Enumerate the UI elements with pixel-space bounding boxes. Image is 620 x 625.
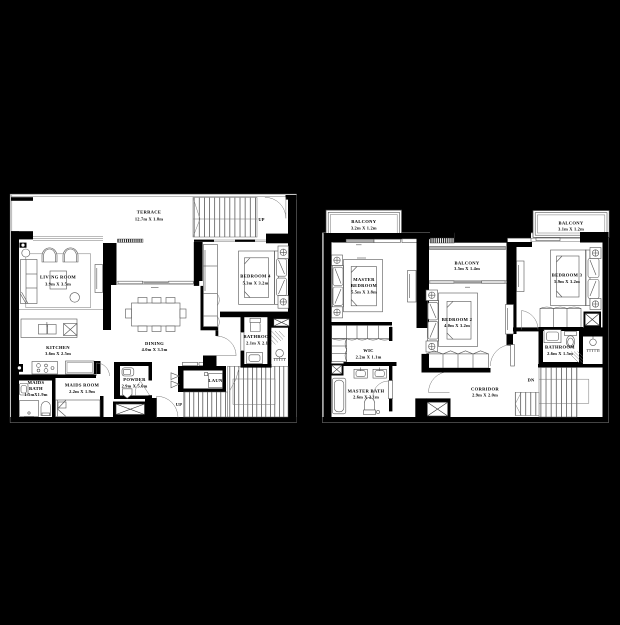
svg-text:2.6m X 1.5m: 2.6m X 1.5m: [547, 351, 573, 356]
svg-text:2.9m X 2.0m: 2.9m X 2.0m: [472, 392, 498, 397]
svg-text:BEDROOM: BEDROOM: [351, 283, 378, 288]
svg-text:3.1m X 1.2m: 3.1m X 1.2m: [558, 227, 584, 232]
svg-text:KITCHEN: KITCHEN: [46, 345, 70, 350]
svg-text:4.0m X 3.2m: 4.0m X 3.2m: [444, 323, 470, 328]
svg-text:BATHROOM: BATHROOM: [244, 334, 274, 339]
svg-text:MASTER BATH: MASTER BATH: [348, 388, 385, 393]
svg-text:BEDROOM 3: BEDROOM 3: [552, 273, 583, 278]
svg-text:WIC: WIC: [363, 348, 374, 353]
svg-text:LAUN: LAUN: [208, 378, 223, 383]
svg-text:BALCONY: BALCONY: [351, 219, 376, 224]
svg-text:5.5m X 3.8m: 5.5m X 3.8m: [351, 289, 377, 294]
svg-text:BATH: BATH: [29, 386, 43, 391]
svg-text:5.9m X 3.2m: 5.9m X 3.2m: [554, 279, 580, 284]
svg-text:3.6m X 2.5m: 3.6m X 2.5m: [45, 351, 71, 356]
svg-text:3.9m X 3.5m: 3.9m X 3.5m: [45, 281, 71, 286]
svg-text:5.3m X 3.2m: 5.3m X 3.2m: [243, 281, 269, 286]
svg-text:12.7m X 1.8m: 12.7m X 1.8m: [135, 217, 163, 222]
svg-text:DINING: DINING: [145, 341, 164, 346]
svg-text:3.5m X 1.4m: 3.5m X 1.4m: [454, 266, 480, 271]
svg-text:LIVING ROOM: LIVING ROOM: [40, 275, 76, 280]
svg-text:BATHROOM: BATHROOM: [545, 345, 575, 350]
svg-text:MAIDS: MAIDS: [28, 380, 45, 385]
svg-text:2.6m X 2.1m: 2.6m X 2.1m: [353, 395, 379, 400]
svg-text:POWDER: POWDER: [123, 377, 146, 382]
svg-text:BEDROOM 4: BEDROOM 4: [240, 274, 271, 279]
svg-text:BALCONY: BALCONY: [454, 261, 479, 266]
svg-text:2.9m X 5.6m: 2.9m X 5.6m: [122, 384, 148, 389]
svg-text:2.2m X 1.9m: 2.2m X 1.9m: [69, 389, 95, 394]
svg-text:BEDROOM 2: BEDROOM 2: [442, 317, 473, 322]
svg-text:TERRACE: TERRACE: [137, 210, 162, 215]
svg-text:2.2m X 1.1m: 2.2m X 1.1m: [356, 355, 382, 360]
svg-text:1.5mX1.9m: 1.5mX1.9m: [24, 392, 47, 397]
svg-text:CORRIDOR: CORRIDOR: [471, 387, 499, 392]
svg-text:UP: UP: [258, 217, 264, 222]
svg-text:MAIDS ROOM: MAIDS ROOM: [65, 383, 100, 388]
svg-text:2.1m X 2.1m: 2.1m X 2.1m: [246, 341, 272, 346]
svg-text:DN: DN: [528, 378, 535, 383]
svg-text:UP: UP: [176, 402, 182, 407]
svg-text:3.2m X 1.2m: 3.2m X 1.2m: [351, 226, 377, 231]
svg-text:4.0m X 3.5m: 4.0m X 3.5m: [142, 347, 168, 352]
svg-text:BALCONY: BALCONY: [558, 220, 583, 225]
svg-text:MASTER: MASTER: [353, 277, 375, 282]
